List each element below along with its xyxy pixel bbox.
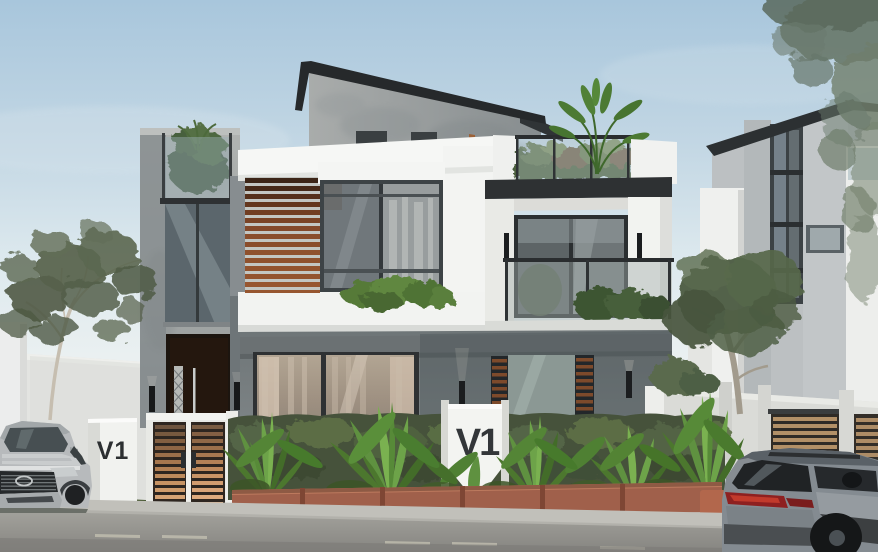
- svg-text:V1: V1: [97, 437, 130, 465]
